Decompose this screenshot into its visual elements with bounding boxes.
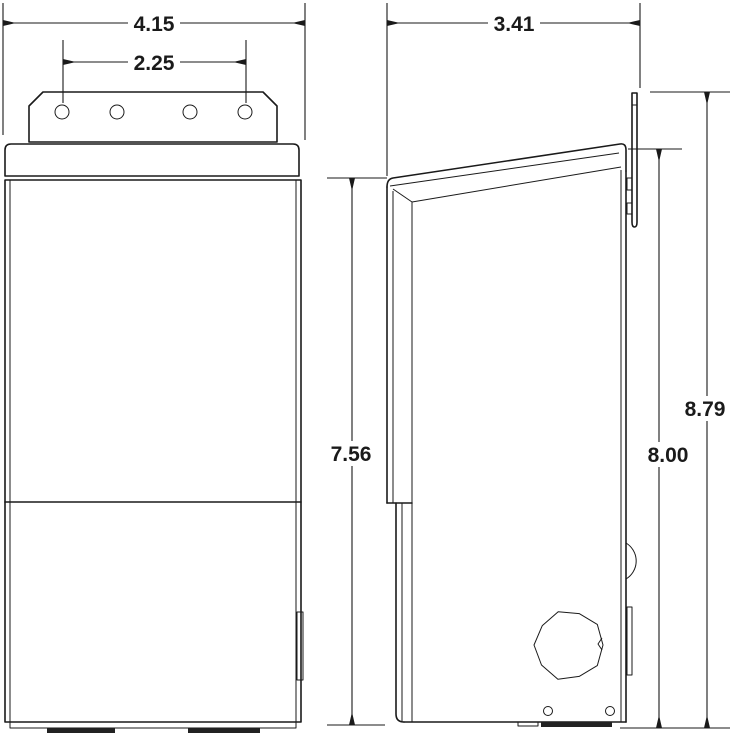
dim-label-depth: 3.41 xyxy=(494,13,535,36)
dimension-annotations: 4.15 2.25 7.56 3.41 xyxy=(3,3,731,728)
side-door-front-face xyxy=(387,144,626,187)
rear-mounting-flange xyxy=(632,93,637,227)
side-foot xyxy=(541,722,612,727)
side-lower-front-face xyxy=(396,503,404,722)
dim-label-overall-height: 8.79 xyxy=(685,398,726,421)
bracket-hole-3 xyxy=(183,105,197,119)
bracket-hole-2 xyxy=(110,105,124,119)
large-knockout xyxy=(534,612,603,680)
front-view xyxy=(5,92,303,733)
front-cap xyxy=(5,144,299,176)
side-lid-underside-line xyxy=(412,167,621,202)
front-body xyxy=(5,180,301,722)
bracket-hole-1 xyxy=(55,105,69,119)
drain-hole-1 xyxy=(544,707,553,716)
dim-depth: 3.41 xyxy=(387,3,640,176)
dimension-drawing: 4.15 2.25 7.56 3.41 xyxy=(0,0,731,736)
bracket-hole-4 xyxy=(238,105,252,119)
front-bottom-strip xyxy=(10,722,296,728)
front-latch-tab xyxy=(297,612,303,680)
dim-label-front-height: 7.56 xyxy=(331,443,372,466)
side-rear-bar xyxy=(627,607,632,675)
dim-hole-spacing: 2.25 xyxy=(63,40,246,103)
front-foot-right xyxy=(188,728,260,733)
drawing-svg: 4.15 2.25 7.56 3.41 xyxy=(0,0,731,736)
dim-overall-height: 8.79 xyxy=(650,92,731,728)
side-knockout-bump xyxy=(626,543,636,579)
drain-hole-2 xyxy=(606,707,615,716)
dim-label-hole-spacing: 2.25 xyxy=(134,52,175,75)
knockout-notch xyxy=(598,638,602,650)
side-view xyxy=(387,93,637,727)
front-foot-left xyxy=(47,728,115,733)
dim-label-front-width: 4.15 xyxy=(134,13,175,36)
dim-label-body-height: 8.00 xyxy=(648,444,689,467)
side-lid-edge-line xyxy=(390,153,619,186)
dim-body-height: 8.00 xyxy=(628,149,695,728)
dim-front-height: 7.56 xyxy=(324,178,387,725)
side-lid-corner-diagonal xyxy=(393,189,412,202)
